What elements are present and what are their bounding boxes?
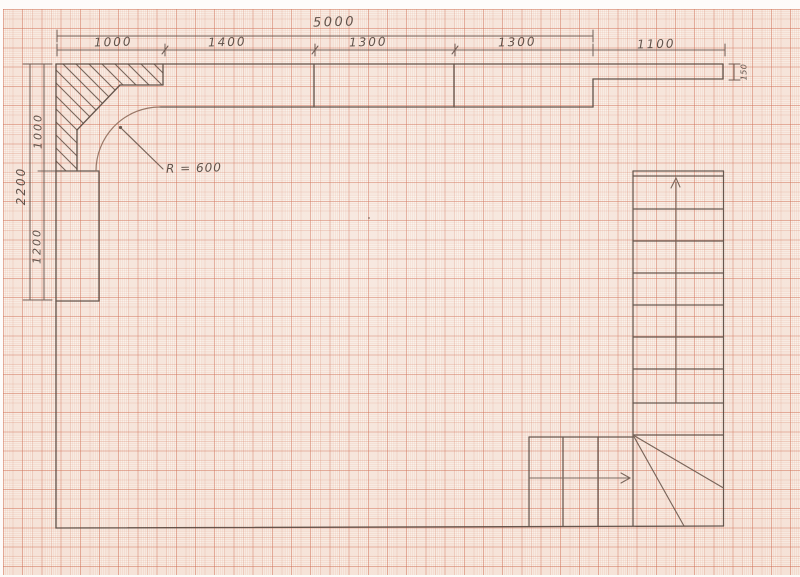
dim-label-seg-1400: 1400 [208, 34, 247, 49]
dim-label-seg-1300-b: 1300 [498, 34, 537, 49]
dim-label-wall-thickness: 150 [740, 64, 749, 81]
corner-wall-hatch [0, 45, 298, 195]
dim-label-seg-1000: 1000 [94, 34, 133, 49]
dim-label-seg-1100: 1100 [637, 36, 676, 51]
scanned-floor-plan: 5000 1000 1400 1300 1300 1100 2200 1000 … [0, 0, 800, 577]
dim-label-left-1200: 1200 [31, 228, 44, 264]
floor-plan-drawing [0, 0, 800, 577]
stair-steps [633, 209, 724, 435]
winder-treads [633, 435, 724, 526]
dim-label-left-total: 2200 [14, 167, 28, 206]
dim-label-top-total: 5000 [313, 14, 356, 30]
staircase [529, 171, 724, 526]
pencil-mark [368, 217, 370, 219]
radius-annotation: R = 600 [166, 160, 222, 175]
bottom-flight [529, 437, 633, 526]
dim-label-left-1000: 1000 [32, 113, 45, 149]
dim-label-seg-1300-a: 1300 [349, 34, 388, 49]
radius-arc [96, 107, 163, 171]
room-outline [56, 64, 724, 528]
